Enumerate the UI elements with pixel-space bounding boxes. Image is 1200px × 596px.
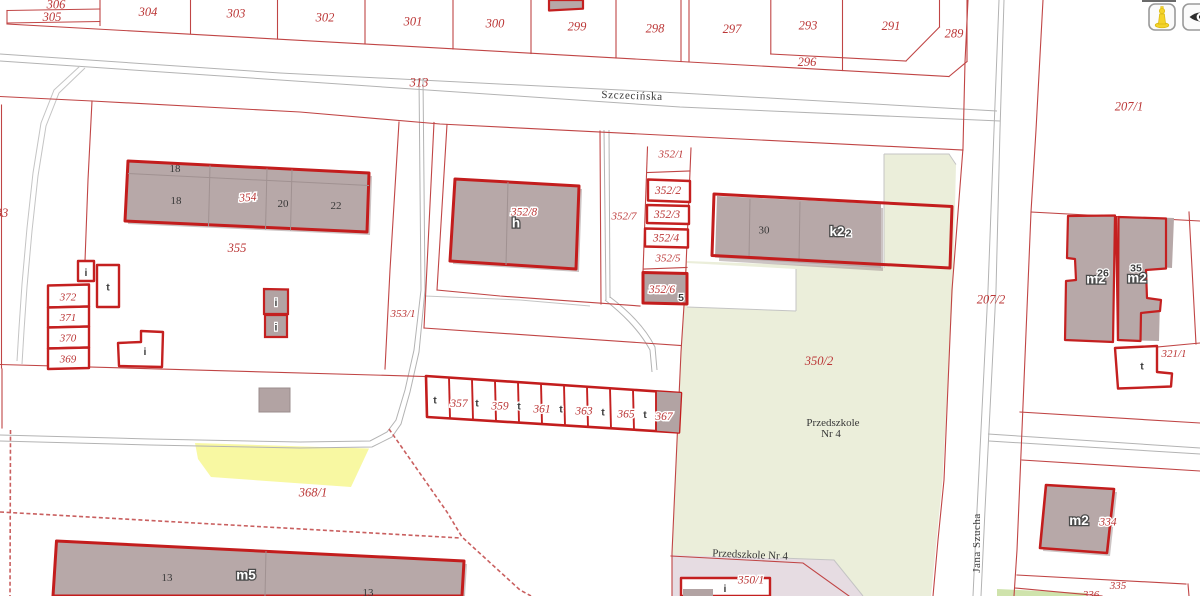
svg-text:t: t: [601, 407, 605, 419]
svg-text:353/1: 353/1: [389, 308, 415, 320]
svg-text:289: 289: [945, 27, 965, 41]
svg-text:t: t: [517, 401, 521, 413]
svg-text:363: 363: [574, 406, 593, 418]
svg-text:296: 296: [798, 55, 818, 69]
svg-text:t: t: [106, 282, 110, 294]
svg-text:350/2: 350/2: [804, 354, 833, 368]
svg-text:Szczecińska: Szczecińska: [601, 89, 663, 103]
svg-text:302: 302: [315, 11, 335, 25]
svg-text:t: t: [475, 398, 479, 410]
svg-text:t: t: [1140, 361, 1144, 373]
svg-text:335: 335: [1109, 580, 1127, 592]
svg-text:33: 33: [0, 206, 8, 220]
svg-text:301: 301: [403, 15, 423, 29]
svg-text:313: 313: [409, 76, 429, 90]
svg-text:i: i: [275, 322, 278, 334]
svg-text:26: 26: [1097, 268, 1109, 280]
svg-text:371: 371: [59, 312, 77, 324]
svg-text:207/2: 207/2: [977, 293, 1005, 307]
svg-text:352/5: 352/5: [654, 253, 681, 265]
svg-text:372: 372: [59, 292, 77, 304]
svg-text:293: 293: [799, 19, 818, 33]
svg-text:m5: m5: [236, 568, 256, 583]
svg-text:300: 300: [485, 17, 506, 31]
svg-text:30: 30: [759, 225, 771, 237]
svg-text:20: 20: [278, 198, 290, 210]
svg-text:303: 303: [226, 7, 246, 21]
svg-text:t: t: [433, 395, 437, 407]
svg-text:321/1: 321/1: [1160, 348, 1186, 360]
svg-text:350/1: 350/1: [737, 575, 764, 587]
svg-text:t: t: [643, 409, 647, 421]
svg-text:297: 297: [723, 22, 743, 36]
svg-text:Jana Szucha: Jana Szucha: [971, 513, 983, 573]
svg-text:22: 22: [331, 200, 342, 212]
svg-text:k2: k2: [829, 224, 844, 239]
svg-text:368/1: 368/1: [298, 486, 327, 500]
svg-text:13: 13: [162, 572, 174, 584]
svg-text:370: 370: [59, 333, 77, 345]
svg-text:357: 357: [449, 398, 469, 410]
svg-text:336: 336: [1082, 589, 1100, 596]
svg-text:i: i: [144, 346, 147, 358]
svg-text:207/1: 207/1: [1115, 100, 1143, 114]
svg-text:352/2: 352/2: [654, 185, 681, 197]
svg-text:352/7: 352/7: [610, 211, 637, 223]
svg-text:291: 291: [882, 19, 901, 33]
svg-text:i: i: [85, 267, 88, 279]
svg-text:355: 355: [227, 241, 247, 255]
svg-text:367: 367: [654, 411, 674, 423]
svg-text:35: 35: [1130, 263, 1142, 275]
svg-text:298: 298: [646, 22, 666, 36]
svg-text:352/1: 352/1: [657, 149, 683, 161]
svg-text:18: 18: [170, 163, 182, 175]
svg-text:i: i: [724, 583, 727, 595]
svg-text:352/3: 352/3: [653, 209, 680, 221]
svg-text:365: 365: [616, 409, 635, 421]
svg-text:305: 305: [42, 10, 62, 24]
svg-text:359: 359: [490, 401, 509, 413]
svg-text:Nr 4: Nr 4: [821, 428, 841, 440]
svg-text:t: t: [559, 404, 563, 416]
svg-text:2: 2: [846, 228, 852, 240]
svg-text:352/6: 352/6: [648, 284, 675, 296]
svg-text:5: 5: [678, 292, 684, 304]
svg-text:369: 369: [59, 354, 77, 366]
svg-text:361: 361: [532, 404, 550, 416]
svg-text:h: h: [512, 216, 520, 231]
svg-text:299: 299: [568, 20, 588, 34]
svg-text:334: 334: [1098, 517, 1117, 529]
svg-text:m2: m2: [1069, 513, 1089, 528]
svg-text:352/4: 352/4: [652, 233, 679, 245]
svg-text:13: 13: [363, 587, 375, 596]
svg-text:354: 354: [238, 191, 257, 204]
svg-text:i: i: [275, 297, 278, 309]
svg-text:18: 18: [171, 195, 183, 207]
svg-text:304: 304: [138, 5, 158, 19]
